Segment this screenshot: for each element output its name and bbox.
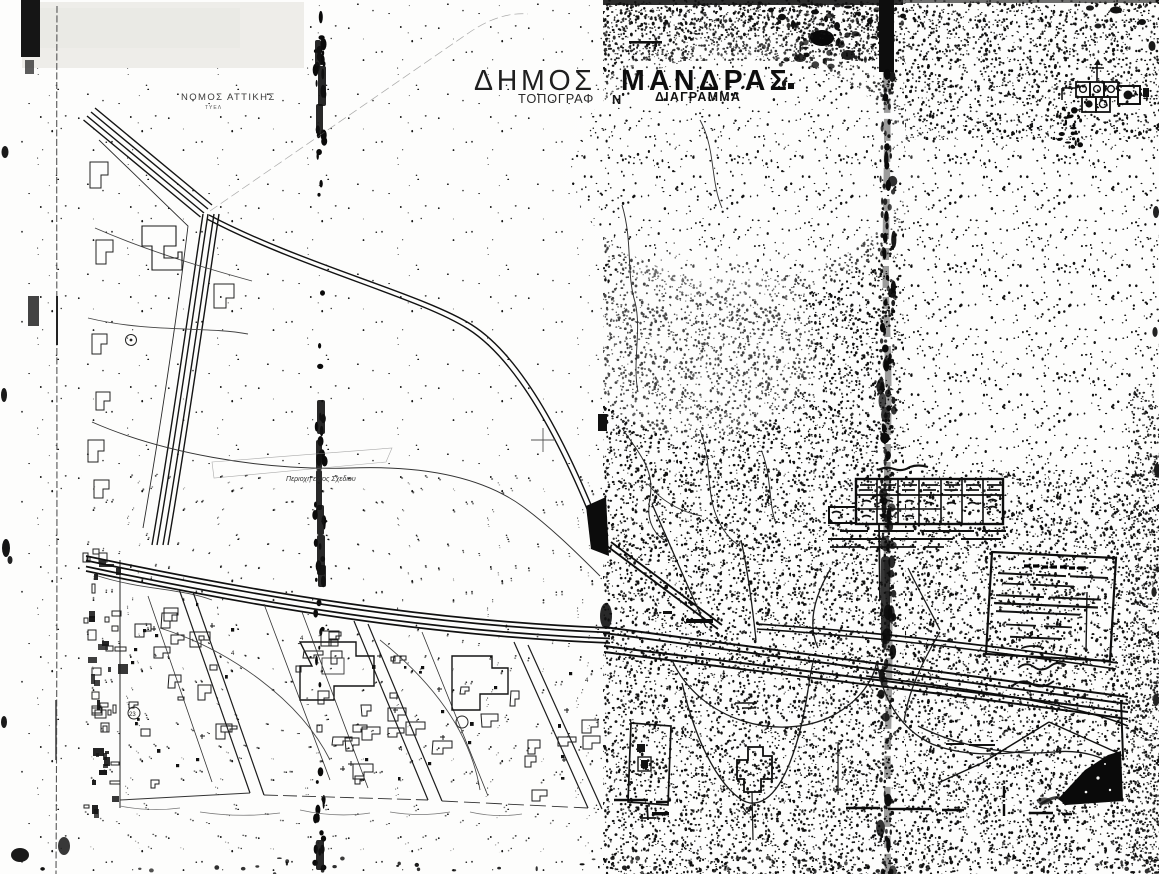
svg-text:Ν: Ν [612, 92, 621, 107]
svg-text:Περιοχη εντος Σχεδιου: Περιοχη εντος Σχεδιου [286, 476, 356, 483]
svg-text:ΤΟΠΟΓΡΑΦ: ΤΟΠΟΓΡΑΦ [518, 91, 594, 106]
svg-text:23: 23 [129, 712, 136, 718]
svg-text:ΝΟΜΟΣ ΑΤΤΙΚΗΣ: ΝΟΜΟΣ ΑΤΤΙΚΗΣ [181, 92, 276, 103]
svg-text:ΔΙΑΓΡΑΜΜΑ: ΔΙΑΓΡΑΜΜΑ [655, 90, 741, 104]
svg-text:ΤΥΕΛ: ΤΥΕΛ [205, 105, 222, 111]
